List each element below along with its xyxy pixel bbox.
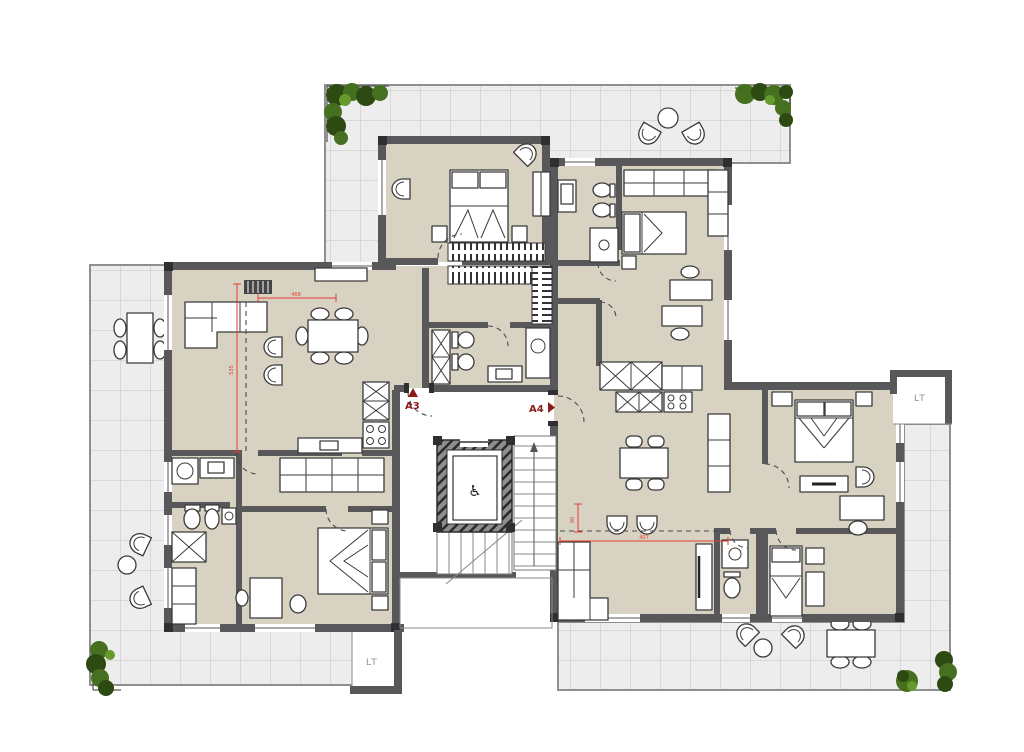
shower bbox=[172, 532, 206, 562]
closet-column bbox=[708, 170, 728, 236]
elevator: ♿ bbox=[433, 436, 515, 532]
toilet bbox=[184, 505, 200, 529]
shower-column bbox=[432, 330, 450, 384]
a3-hall-closets bbox=[280, 458, 384, 492]
bidet bbox=[205, 505, 219, 529]
dimension-value: 407 bbox=[639, 535, 649, 541]
toilet bbox=[593, 183, 615, 197]
closet bbox=[533, 172, 550, 216]
bidet bbox=[593, 203, 615, 217]
unit-label-a3: A3 bbox=[405, 401, 420, 412]
single-bed bbox=[770, 546, 802, 616]
shower bbox=[590, 228, 618, 262]
washing-machine bbox=[526, 328, 550, 378]
bidet bbox=[452, 354, 474, 370]
toilet bbox=[724, 572, 740, 598]
window bbox=[164, 515, 172, 545]
window bbox=[565, 158, 595, 166]
lt-label-right: LT bbox=[914, 394, 926, 404]
washbasin bbox=[558, 180, 576, 212]
nightstand bbox=[372, 510, 388, 524]
washbasin bbox=[722, 540, 748, 568]
toilet bbox=[452, 332, 474, 348]
lt-room-bottom: LT bbox=[350, 630, 402, 694]
window bbox=[185, 624, 220, 632]
double-bed bbox=[450, 170, 508, 242]
floor-plan-page: ♿ LT LT 535 468 90 407 bbox=[0, 0, 1024, 752]
washing-machine bbox=[172, 458, 198, 484]
nightstand bbox=[622, 256, 636, 269]
armchair bbox=[856, 467, 874, 487]
radiator bbox=[244, 280, 272, 294]
armchair bbox=[392, 179, 410, 199]
washbasin bbox=[488, 366, 522, 382]
wardrobe bbox=[624, 170, 716, 196]
window bbox=[164, 295, 172, 350]
floor-plan-drawing: ♿ LT LT 535 468 90 407 bbox=[0, 0, 1024, 752]
sink bbox=[200, 458, 234, 478]
window bbox=[724, 300, 732, 340]
window bbox=[896, 462, 904, 502]
nightstand bbox=[806, 548, 824, 564]
nightstand bbox=[772, 392, 792, 406]
desk bbox=[806, 572, 824, 606]
window bbox=[378, 160, 386, 215]
nightstand bbox=[432, 226, 447, 242]
washbasin bbox=[222, 508, 236, 524]
window bbox=[255, 624, 315, 632]
nightstand bbox=[856, 392, 872, 406]
single-bed bbox=[622, 212, 686, 254]
a4-upper-floor bbox=[554, 166, 728, 392]
a4-bedroom-small bbox=[770, 546, 824, 616]
sideboard bbox=[315, 268, 367, 281]
window bbox=[164, 462, 172, 492]
tv-unit bbox=[696, 544, 712, 610]
hob bbox=[664, 392, 692, 412]
armchair bbox=[264, 365, 282, 385]
bath-cabinet bbox=[172, 568, 196, 624]
nightstand bbox=[512, 226, 527, 242]
wheelchair-icon: ♿ bbox=[468, 482, 481, 500]
armchair bbox=[264, 337, 282, 357]
wardrobe bbox=[448, 243, 545, 261]
lt-label-bottom: LT bbox=[366, 658, 378, 668]
window bbox=[164, 568, 172, 608]
tv-dresser bbox=[800, 476, 848, 492]
chair bbox=[290, 595, 306, 613]
double-bed bbox=[795, 400, 853, 462]
dimension-value: 468 bbox=[291, 292, 301, 298]
pantry-column bbox=[708, 414, 730, 492]
dimension-value: 535 bbox=[229, 365, 235, 375]
window bbox=[722, 614, 750, 622]
double-bed bbox=[318, 528, 388, 594]
unit-label-a4: A4 bbox=[529, 404, 544, 415]
dimension-value: 90 bbox=[570, 517, 576, 523]
nightstand bbox=[372, 596, 388, 610]
lt-room-right: LT bbox=[890, 370, 952, 424]
